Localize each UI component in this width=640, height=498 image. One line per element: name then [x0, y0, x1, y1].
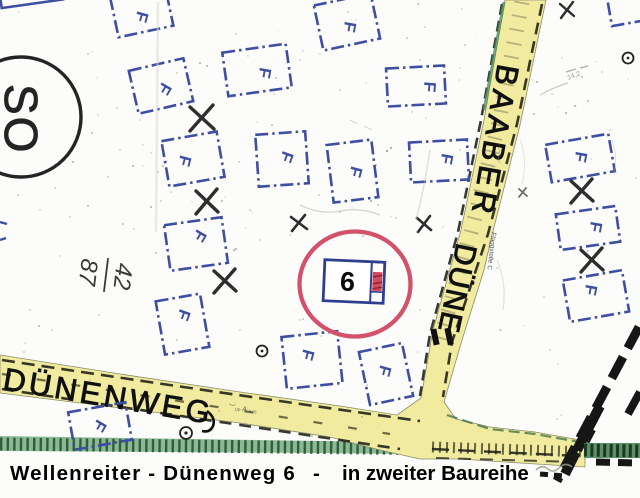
svg-text:-: -: [313, 462, 320, 485]
svg-text:F: F: [420, 81, 440, 93]
svg-text:Wellenreiter - Dünenweg 6: Wellenreiter - Dünenweg 6: [10, 462, 296, 485]
svg-text:in zweiter Baureihe: in zweiter Baureihe: [342, 462, 529, 485]
svg-text:SO: SO: [0, 84, 47, 154]
svg-text:6: 6: [339, 266, 355, 297]
svg-text:42: 42: [107, 261, 137, 291]
svg-text:87: 87: [72, 257, 102, 288]
